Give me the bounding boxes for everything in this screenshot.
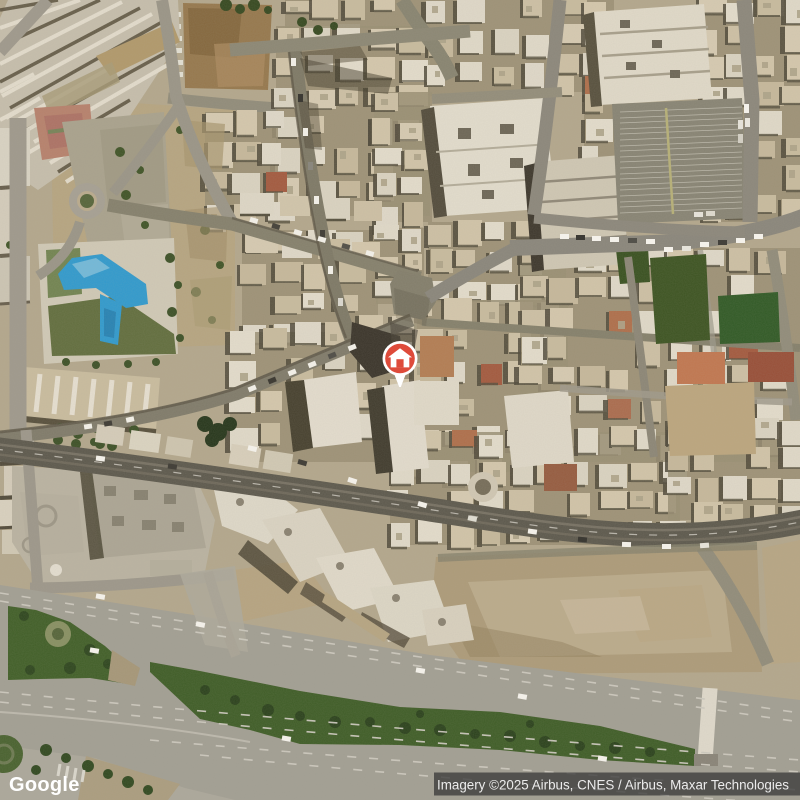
svg-text:Google: Google (9, 774, 80, 796)
svg-text:Imagery ©2025 Airbus, CNES / A: Imagery ©2025 Airbus, CNES / Airbus, Max… (437, 778, 789, 793)
